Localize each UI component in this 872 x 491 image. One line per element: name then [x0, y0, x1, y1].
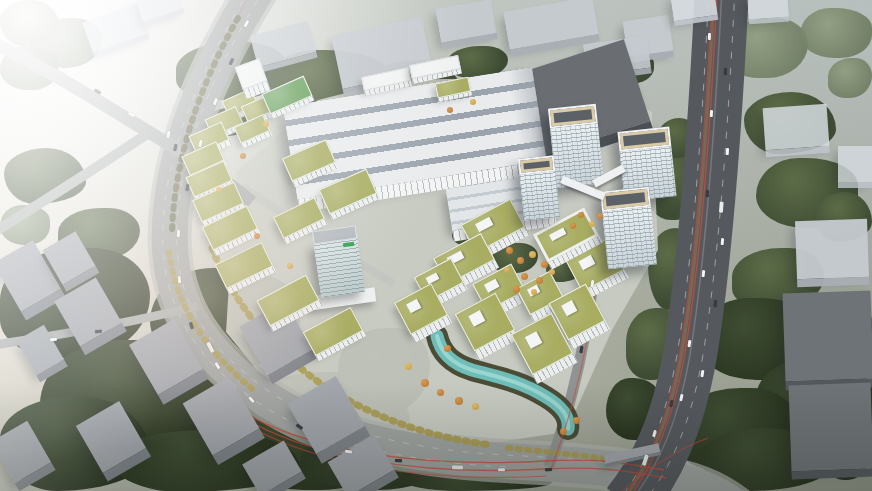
- aerial-rendering-canvas: [0, 0, 872, 491]
- sun-glare-overlay: [0, 0, 872, 491]
